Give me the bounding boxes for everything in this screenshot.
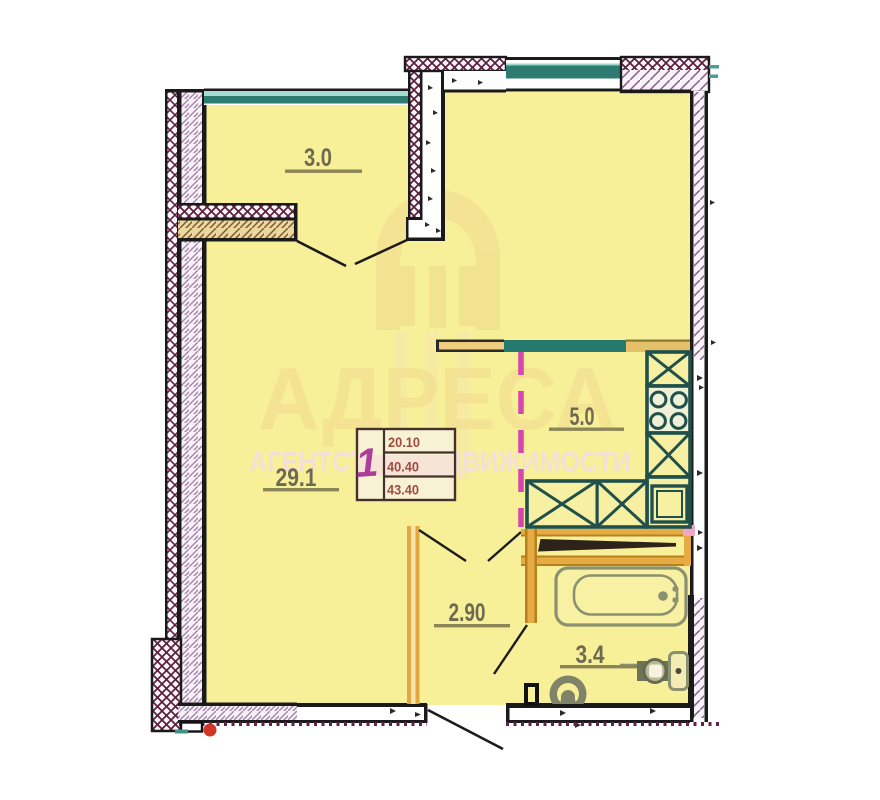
svg-text:1: 1 (354, 440, 379, 485)
svg-text:2.90: 2.90 (449, 599, 486, 627)
svg-text:40.40: 40.40 (387, 459, 419, 475)
svg-text:3.0: 3.0 (304, 144, 332, 172)
svg-text:5.0: 5.0 (570, 403, 595, 431)
svg-text:3.4: 3.4 (576, 641, 605, 669)
svg-text:29.1: 29.1 (276, 464, 317, 492)
svg-text:43.40: 43.40 (387, 482, 419, 498)
svg-text:20.10: 20.10 (388, 434, 420, 450)
